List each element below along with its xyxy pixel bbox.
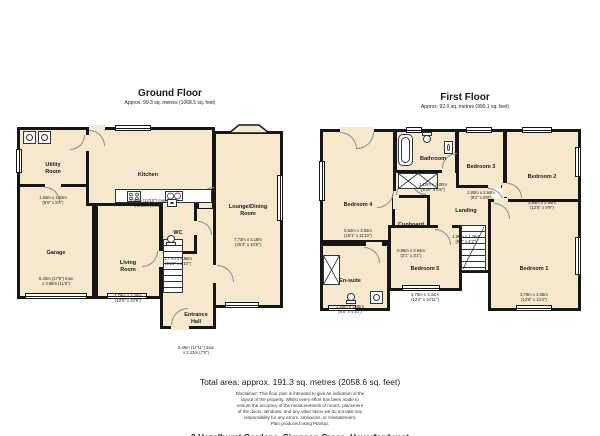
window bbox=[225, 302, 259, 308]
ground-floor-title: Ground Floor Approx. 99.3 sq. metres (10… bbox=[90, 88, 250, 106]
first-floor-plan: Bedroom 4 5.52m x 3.62m (18'1" x 11'10")… bbox=[318, 125, 582, 315]
label-bedroom5: Bedroom 5 3.70m x 3.34m (12'2" x 10'11") bbox=[400, 247, 450, 321]
window bbox=[575, 147, 581, 177]
chimney-breast-icon bbox=[229, 124, 269, 133]
ground-floor-title-text: Ground Floor bbox=[90, 88, 250, 99]
total-area-text: Total area: approx. 191.3 sq. metres (20… bbox=[0, 377, 600, 387]
footer: Total area: approx. 191.3 sq. metres (20… bbox=[0, 377, 600, 436]
window bbox=[115, 125, 151, 131]
first-floor-area-text: Approx. 92.0 sq. metres (990.1 sq. feet) bbox=[385, 104, 545, 110]
label-bedroom4: Bedroom 4 5.52m x 3.62m (18'1" x 11'10") bbox=[330, 183, 386, 257]
ground-floor-area-text: Approx. 99.3 sq. metres (1068.5 sq. feet… bbox=[90, 100, 250, 106]
label-lounge: Lounge/Dining Room 7.73m x 3.18m (25'4" … bbox=[218, 185, 278, 266]
window bbox=[575, 237, 581, 275]
label-entrance-hall: Entrance Hall 5.46m (17'11") max x 2.13m… bbox=[170, 293, 222, 374]
floorplan-page: Ground Floor Approx. 99.3 sq. metres (10… bbox=[0, 0, 600, 436]
first-floor-title-text: First Floor bbox=[385, 92, 545, 103]
label-bedroom2: Bedroom 2 3.86m x 2.96m (12'8" x 9'9") bbox=[517, 155, 567, 229]
window bbox=[522, 127, 552, 133]
label-utility: Utility Room 1.83m x 1.63m (6'0" x 5'4") bbox=[33, 143, 73, 224]
label-garage: Garage 5.40m (17'9") max x 3.58m (11'9") bbox=[31, 231, 81, 305]
door-opening bbox=[85, 135, 90, 151]
bath-icon bbox=[398, 134, 413, 166]
window bbox=[319, 161, 325, 201]
door-opening bbox=[199, 203, 212, 208]
label-wc: WC 1.77m x 0.86m (5'10" x 2'10") bbox=[163, 211, 193, 285]
label-ensuite: En-suite 1.98m x 1.48m (6'6" x 4'10") bbox=[328, 259, 372, 333]
ground-floor-plan: Utility Room 1.83m x 1.63m (6'0" x 5'4")… bbox=[15, 123, 285, 347]
disclaimer-text: Disclaimer: This floor plan is intended … bbox=[0, 391, 600, 427]
label-living: Living Room 3.79m x 3.28m (12'5" x 10'9"… bbox=[103, 241, 153, 322]
first-floor-title: First Floor Approx. 92.0 sq. metres (990… bbox=[385, 92, 545, 110]
address-text: 2 Hazelhurst Gardens, Simpson Cross, Hav… bbox=[0, 432, 600, 436]
window bbox=[16, 149, 22, 173]
window bbox=[466, 127, 492, 133]
window bbox=[406, 127, 422, 133]
label-bedroom1: Bedroom 1 3.78m x 4.06m (12'5" x 13'4") bbox=[509, 247, 559, 321]
